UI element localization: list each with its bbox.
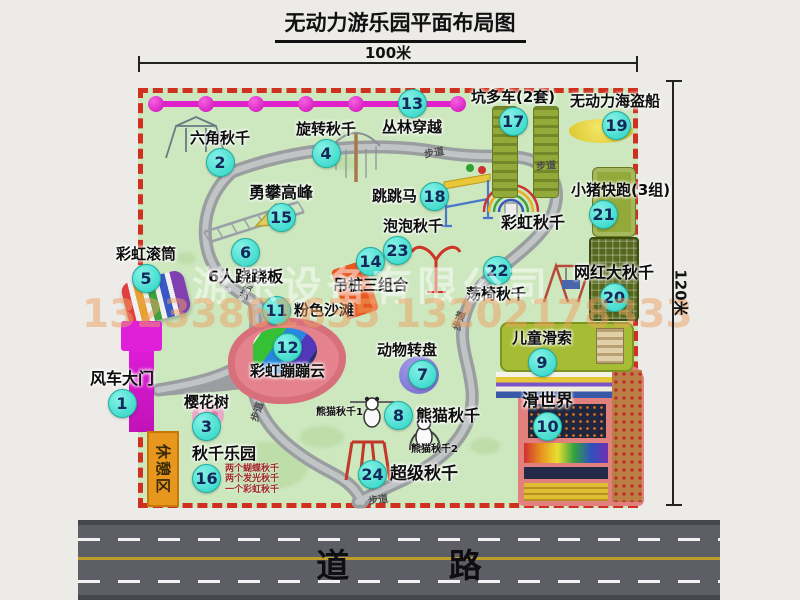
zipline-dot [348,96,364,112]
poi-rainbow-swing: 彩虹秋千 [501,214,565,232]
width-dimension-line [138,62,638,64]
label-panda-swing-1: 熊猫秋千1 [316,403,363,418]
slide-tower-strip [612,370,642,502]
label-piggy-run: 小猪快跑(3组) [571,182,670,199]
footpath-label: 步道 [367,490,389,508]
label-hexagon-swing: 六角秋千 [190,130,250,147]
swing-park-note-3: 一个彩虹秋千 [225,485,279,496]
poi-hexagon-swing: 六角秋千 2 [190,130,250,177]
label-bubble-swing: 泡泡秋千 [383,218,443,235]
label-windmill-gate: 风车大门 [90,370,154,388]
label-panda-swing-2: 熊猫秋千2 [411,440,458,455]
zipline-dot [148,96,164,112]
marker-2: 2 [206,148,235,177]
zipline-dot [248,96,264,112]
wavy-slide-bar [524,483,608,501]
label-super-swing: 超级秋千 [390,465,458,484]
poi-windmill-gate: 风车大门 1 [90,370,154,418]
zipline-dot [198,96,214,112]
label-big-net-swing: 网红大秋千 [574,264,654,282]
poi-jumping-horse: 跳跳马 18 [372,182,449,211]
label-panda-swing: 熊猫秋千 [416,407,480,425]
title-wrap: 无动力游乐园平面布局图 [0,7,800,43]
marker-5: 5 [132,264,161,293]
marker-15: 15 [267,203,296,232]
swing-park-note-1: 两个蝴蝶秋千 [225,464,279,475]
zipline-dot [450,96,466,112]
poi-rainbow-bounce-cloud: 彩虹蹦蹦云 12 [250,333,325,380]
poi-slide-world: 滑世界 10 [522,392,573,441]
width-dimension-label: 100米 [138,42,638,63]
marker-19: 19 [602,111,631,140]
label-climbing-peak: 勇攀高峰 [249,184,313,202]
plan-screenshot: 无动力游乐园平面布局图 100米 120米 [0,0,800,600]
label-jungle-crossing: 丛林穿越 [382,119,442,136]
marker-8: 8 [384,401,413,430]
swing-park-note-2: 两个发光秋千 [225,474,279,485]
poi-jungle-crossing: 丛林穿越 13 [382,89,442,136]
poi-rotating-swing: 旋转秋千 4 [296,121,356,168]
marker-3: 3 [192,412,221,441]
poi-pirate-ship: 无动力海盗船 19 [570,93,660,140]
poi-animal-turntable: 动物转盘 7 [377,342,437,389]
label-jumping-horse: 跳跳马 [372,188,417,205]
bush-decoration [470,438,500,454]
marker-12: 12 [273,333,302,362]
swing-park-details: 16 两个蝴蝶秋千 两个发光秋千 一个彩虹秋千 [192,464,279,496]
marker-17: 17 [499,107,528,136]
zipline-dot [298,96,314,112]
poi-swing-park: 秋千乐园 16 两个蝴蝶秋千 两个发光秋千 一个彩虹秋千 [192,445,279,495]
marker-21: 21 [589,200,618,229]
marker-16: 16 [192,464,221,493]
footpath-label: 步道 [535,156,556,173]
rest-area-label: 休憩区 [153,443,174,494]
label-animal-turntable: 动物转盘 [377,342,437,359]
marker-7: 7 [408,360,437,389]
label-swing-park: 秋千乐园 [192,445,256,463]
label-rotating-swing: 旋转秋千 [296,121,356,138]
label-slide-world: 滑世界 [522,392,573,411]
poi-piggy-run: 小猪快跑(3组) 21 [571,182,670,229]
label-pirate-ship: 无动力海盗船 [570,93,660,110]
poi-climbing-peak: 勇攀高峰 15 [249,184,313,232]
label-rainbow-swing: 彩虹秋千 [501,214,565,232]
marker-10: 10 [533,412,562,441]
poi-pit-bike: 坑多车(2套) 17 [471,89,555,136]
slide-bar [524,467,608,479]
poi-super-swing: 超级秋千 24 [358,460,458,489]
marker-1: 1 [108,389,137,418]
marker-9: 9 [528,348,557,377]
label-rainbow-bounce-cloud: 彩虹蹦蹦云 [250,363,325,380]
label-cherry-tree: 樱花树 [184,394,229,411]
road: 道 路 [78,520,720,600]
rainbow-slide-bar [524,443,608,463]
marker-18: 18 [420,182,449,211]
height-dimension-label: 120米 [671,269,692,315]
label-rainbow-roller: 彩虹滚筒 [116,246,176,263]
road-label: 道 路 [78,539,720,587]
watermark-phone: 13233861635 13202178333 [82,292,693,337]
marker-13: 13 [398,89,427,118]
marker-24: 24 [358,460,387,489]
page-title: 无动力游乐园平面布局图 [275,7,526,43]
swing-park-notes: 两个蝴蝶秋千 两个发光秋千 一个彩虹秋千 [225,464,279,496]
bush-decoration [300,426,344,448]
rest-area: 休憩区 [147,431,179,507]
marker-4: 4 [312,139,341,168]
label-pit-bike: 坑多车(2套) [471,89,555,106]
poi-rainbow-roller: 彩虹滚筒 5 [116,246,176,293]
poi-cherry-tree: 樱花树 3 [184,394,229,441]
poi-panda-swing: 熊猫秋千 8 [384,401,480,430]
